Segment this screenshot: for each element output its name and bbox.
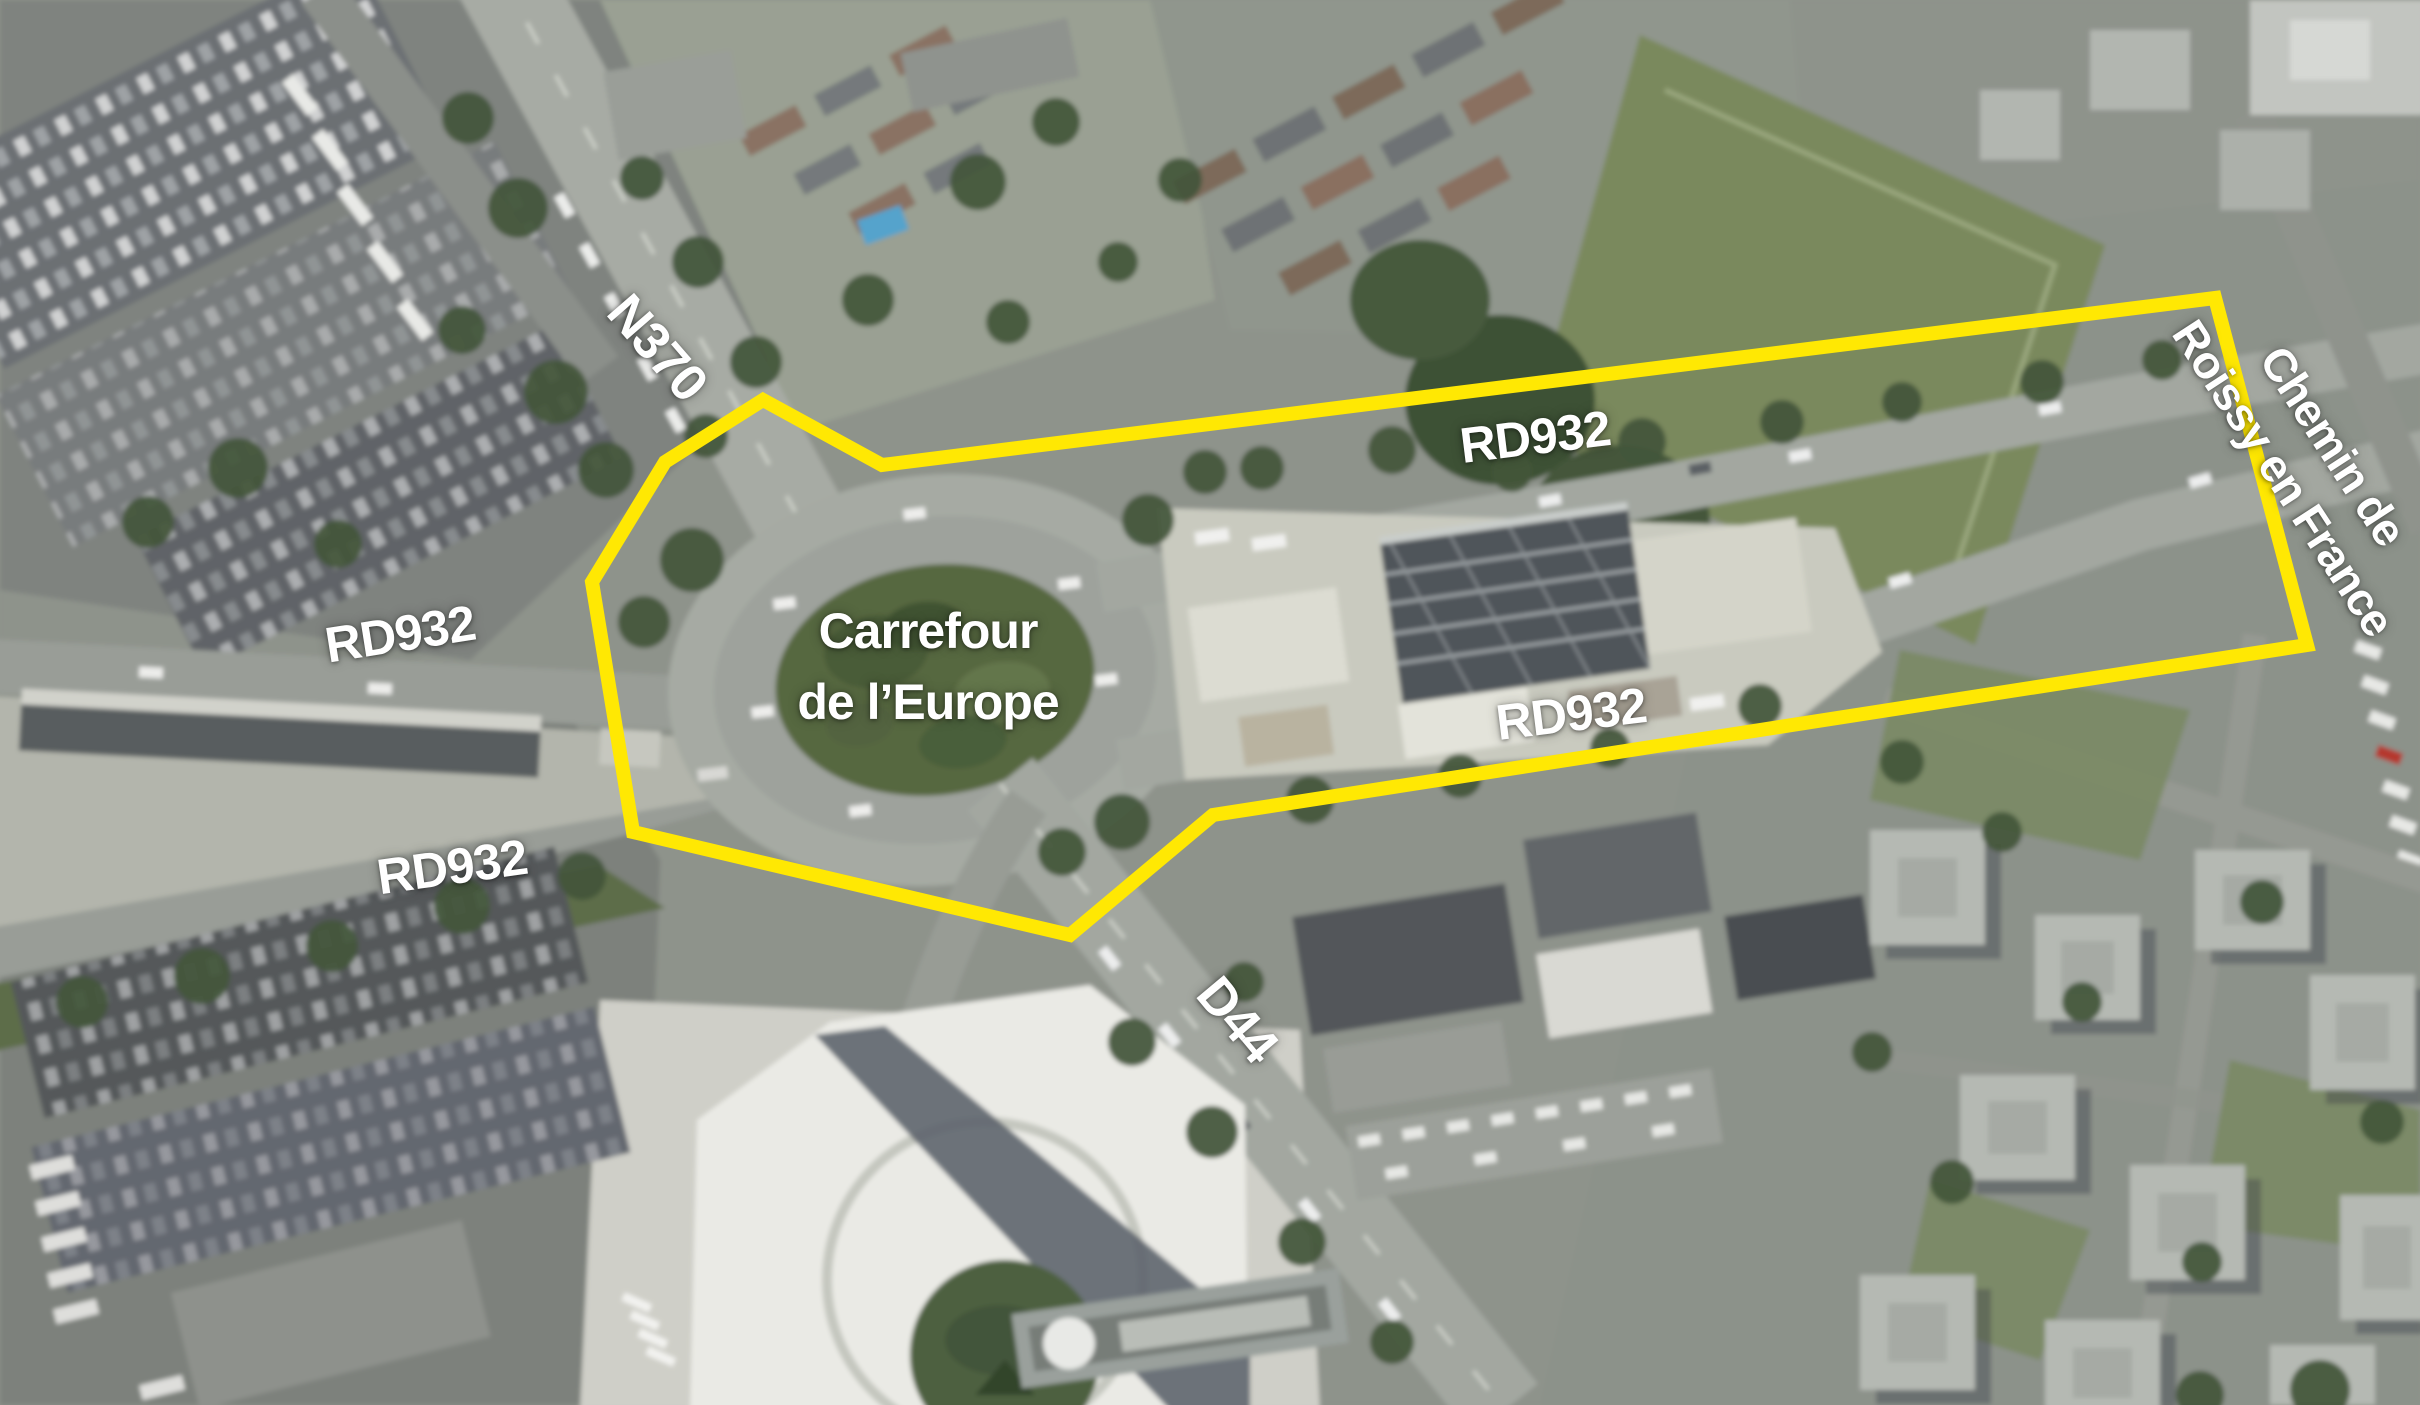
annotation-overlay bbox=[0, 0, 2420, 1405]
place-label-line1: Carrefour bbox=[797, 596, 1058, 667]
place-label-carrefour-de-leurope: Carrefour de l’Europe bbox=[797, 596, 1058, 738]
place-label-line2: de l’Europe bbox=[797, 667, 1058, 738]
aerial-map: N370 RD932 RD932 RD932 RD932 Carrefour d… bbox=[0, 0, 2420, 1405]
